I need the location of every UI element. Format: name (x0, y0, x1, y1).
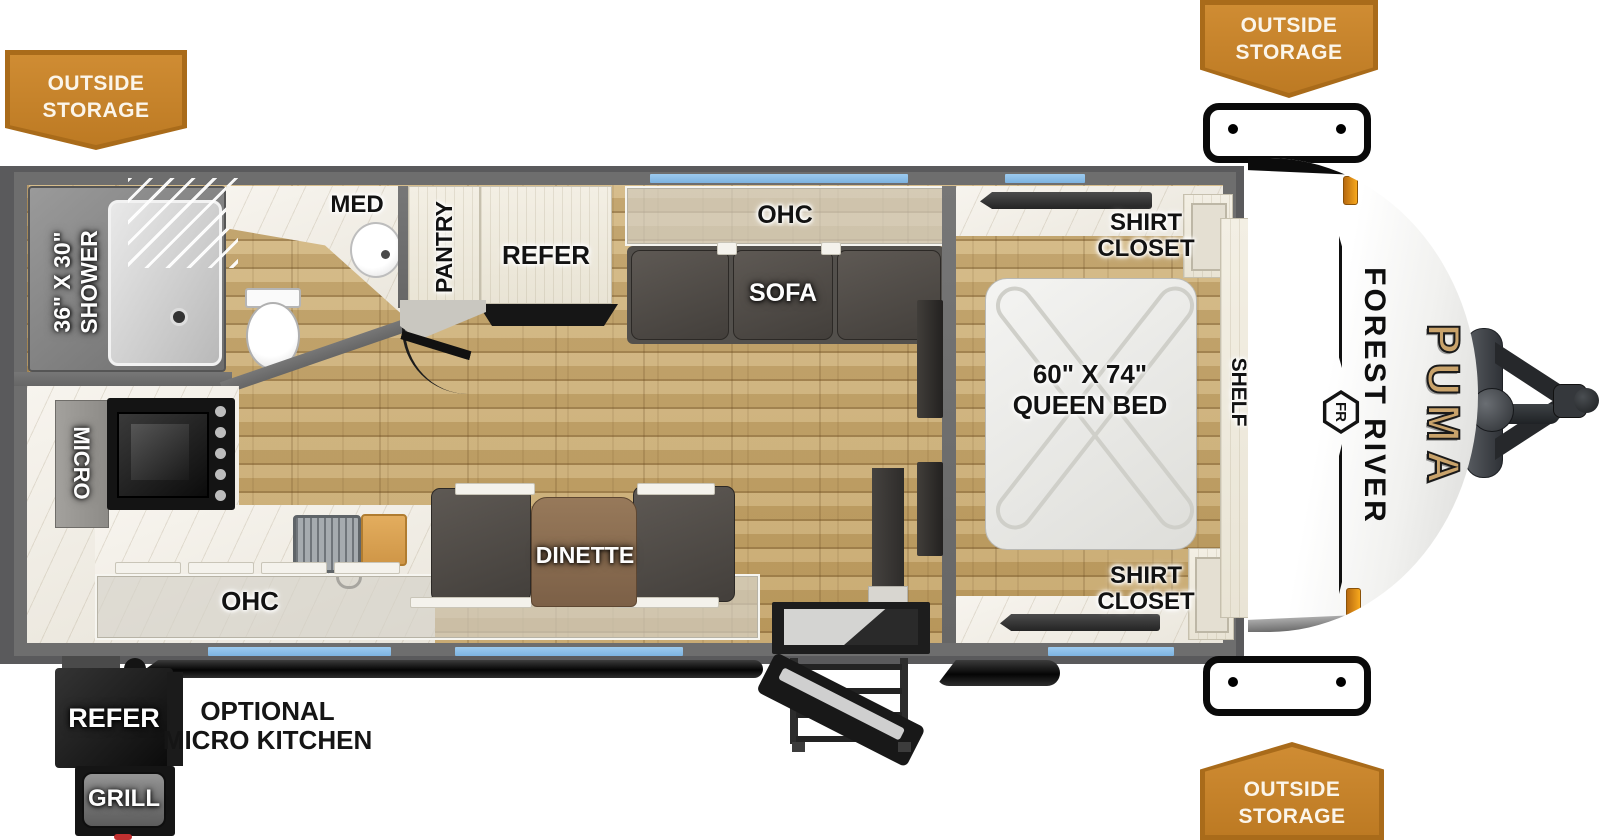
ohc-shelf-tab-3 (261, 562, 327, 574)
closet-bottom-label: SHIRT CLOSET (1090, 562, 1202, 616)
front-bracket-bottom (1203, 656, 1371, 716)
stove-knob-5 (215, 490, 226, 501)
stove-door-glass (131, 424, 189, 480)
banner-line1: OUTSIDE (1200, 776, 1384, 803)
front-bracket-top-rivet-left (1228, 124, 1238, 134)
bedroom-door-top (917, 300, 943, 418)
outside-storage-banner-top-left: OUTSIDE STORAGE (5, 50, 187, 150)
stove-knob-2 (215, 427, 226, 438)
banner-line1: OUTSIDE (5, 70, 187, 97)
exterior-grill-knob (114, 834, 132, 840)
refer-toe-shadow (478, 304, 618, 326)
front-cap: FR FOREST RIVER PUMA (1248, 158, 1478, 632)
bed-size-line: 60" X 74" (1013, 359, 1168, 390)
step-foot-right (898, 742, 911, 752)
micro-label: MICRO (69, 403, 93, 523)
outside-storage-banner-top-right: OUTSIDE STORAGE (1200, 0, 1378, 98)
forest-river-logo: FR (1320, 390, 1362, 434)
stove-knob-4 (215, 469, 226, 480)
sofa-ohc-label: OHC (740, 200, 830, 230)
cap-swoosh-top (1339, 236, 1342, 368)
shelf-label: SHELF (1227, 337, 1249, 447)
forest-river-wordmark: FOREST RIVER (1358, 251, 1390, 541)
marker-light-top (1343, 176, 1358, 205)
front-bracket-top (1203, 103, 1371, 163)
bedroom-door-bottom (917, 462, 943, 556)
shower-text-label: SHOWER (76, 230, 103, 334)
window-top-bedroom (1005, 174, 1085, 183)
outside-storage-banner-bottom-right: OUTSIDE STORAGE (1200, 742, 1384, 840)
cap-top-trim (1248, 158, 1478, 180)
sofa-cushion-left (631, 250, 729, 340)
med-label: MED (318, 192, 396, 218)
dinette-bench-left-base (410, 597, 532, 608)
closet-top-line1: SHIRT (1097, 210, 1194, 236)
entry-threshold (772, 602, 930, 654)
puma-text: PUMA (1417, 324, 1469, 493)
sofa-label: SOFA (730, 278, 836, 308)
bed-label: 60" X 74" QUEEN BED (995, 358, 1185, 422)
stove (107, 398, 235, 510)
bathroom-faucet (381, 250, 390, 259)
ohc-shelf-tab-4 (334, 562, 400, 574)
stove-knob-3 (215, 448, 226, 459)
dinette-bench-left-cap (455, 483, 535, 495)
shower-label: 36" X 30" SHOWER (47, 194, 105, 370)
puma-wordmark: PUMA (1417, 298, 1469, 518)
banner-line2: STORAGE (1200, 39, 1378, 66)
awning-rail-right (936, 660, 1060, 686)
closet-bottom-line2: CLOSET (1097, 589, 1194, 615)
closet-bottom-line1: SHIRT (1097, 563, 1194, 589)
cap-swoosh-bottom (1339, 444, 1342, 594)
sofa-armrest-tab-right (821, 242, 841, 255)
forest-river-text: FOREST RIVER (1357, 267, 1391, 525)
window-top-living (650, 174, 908, 183)
floorplan-stage: 36" X 30" SHOWER MED MICRO OHC (0, 0, 1600, 840)
window-bottom-kitchen (208, 647, 391, 656)
stove-knob-1 (215, 406, 226, 417)
cap-bottom-trim (1248, 610, 1478, 632)
awning-rail-left (133, 660, 763, 678)
front-bracket-top-rivet-right (1336, 124, 1346, 134)
shower-drain (170, 308, 188, 326)
optional-label: OPTIONAL MICRO KITCHEN (150, 696, 385, 756)
bathroom-sink (350, 222, 402, 278)
micro-text: MICRO (68, 426, 94, 499)
pantry-label: PANTRY (431, 182, 457, 312)
bed-type-line: QUEEN BED (1013, 390, 1168, 421)
bedroom-shelf-slab-top (980, 192, 1152, 209)
bathroom-wall-bottom (14, 372, 232, 386)
sofa-armrest-tab-left (717, 242, 737, 255)
banner-line2: STORAGE (1200, 803, 1384, 830)
exterior-grill-label: GRILL (80, 784, 168, 814)
shower-size-label: 36" X 30" (49, 230, 76, 334)
closet-top-line2: CLOSET (1097, 236, 1194, 262)
banner-line1: OUTSIDE (1200, 12, 1378, 39)
marker-light-bottom (1346, 588, 1361, 617)
front-bracket-bottom-rivet-right (1336, 677, 1346, 687)
bedroom-shelf-slab-bottom (1000, 614, 1160, 631)
shelf-text: SHELF (1226, 358, 1250, 427)
refer-label: REFER (485, 240, 607, 270)
hitch-ball-knob (1574, 388, 1599, 413)
dinette-bench-left (431, 488, 531, 602)
dinette-bench-right-cap (637, 483, 715, 495)
front-bracket-bottom-rivet-left (1228, 677, 1238, 687)
step-foot-left (792, 742, 805, 752)
closet-top-label: SHIRT CLOSET (1090, 208, 1202, 264)
dinette-label: DINETTE (520, 540, 650, 570)
ohc-shelf-tab-2 (188, 562, 254, 574)
ohc-shelf-tab-1 (115, 562, 181, 574)
bedroom-wall (942, 186, 956, 643)
kitchen-ohc-label: OHC (205, 586, 295, 616)
shower-glass (128, 178, 238, 268)
banner-line2: STORAGE (5, 97, 187, 124)
optional-line2: MICRO KITCHEN (163, 726, 372, 755)
pantry-text: PANTRY (431, 201, 458, 293)
window-bottom-dinette (455, 647, 683, 656)
optional-line1: OPTIONAL (163, 697, 372, 726)
window-bottom-bedroom (1048, 647, 1174, 656)
cutting-board (361, 514, 407, 566)
